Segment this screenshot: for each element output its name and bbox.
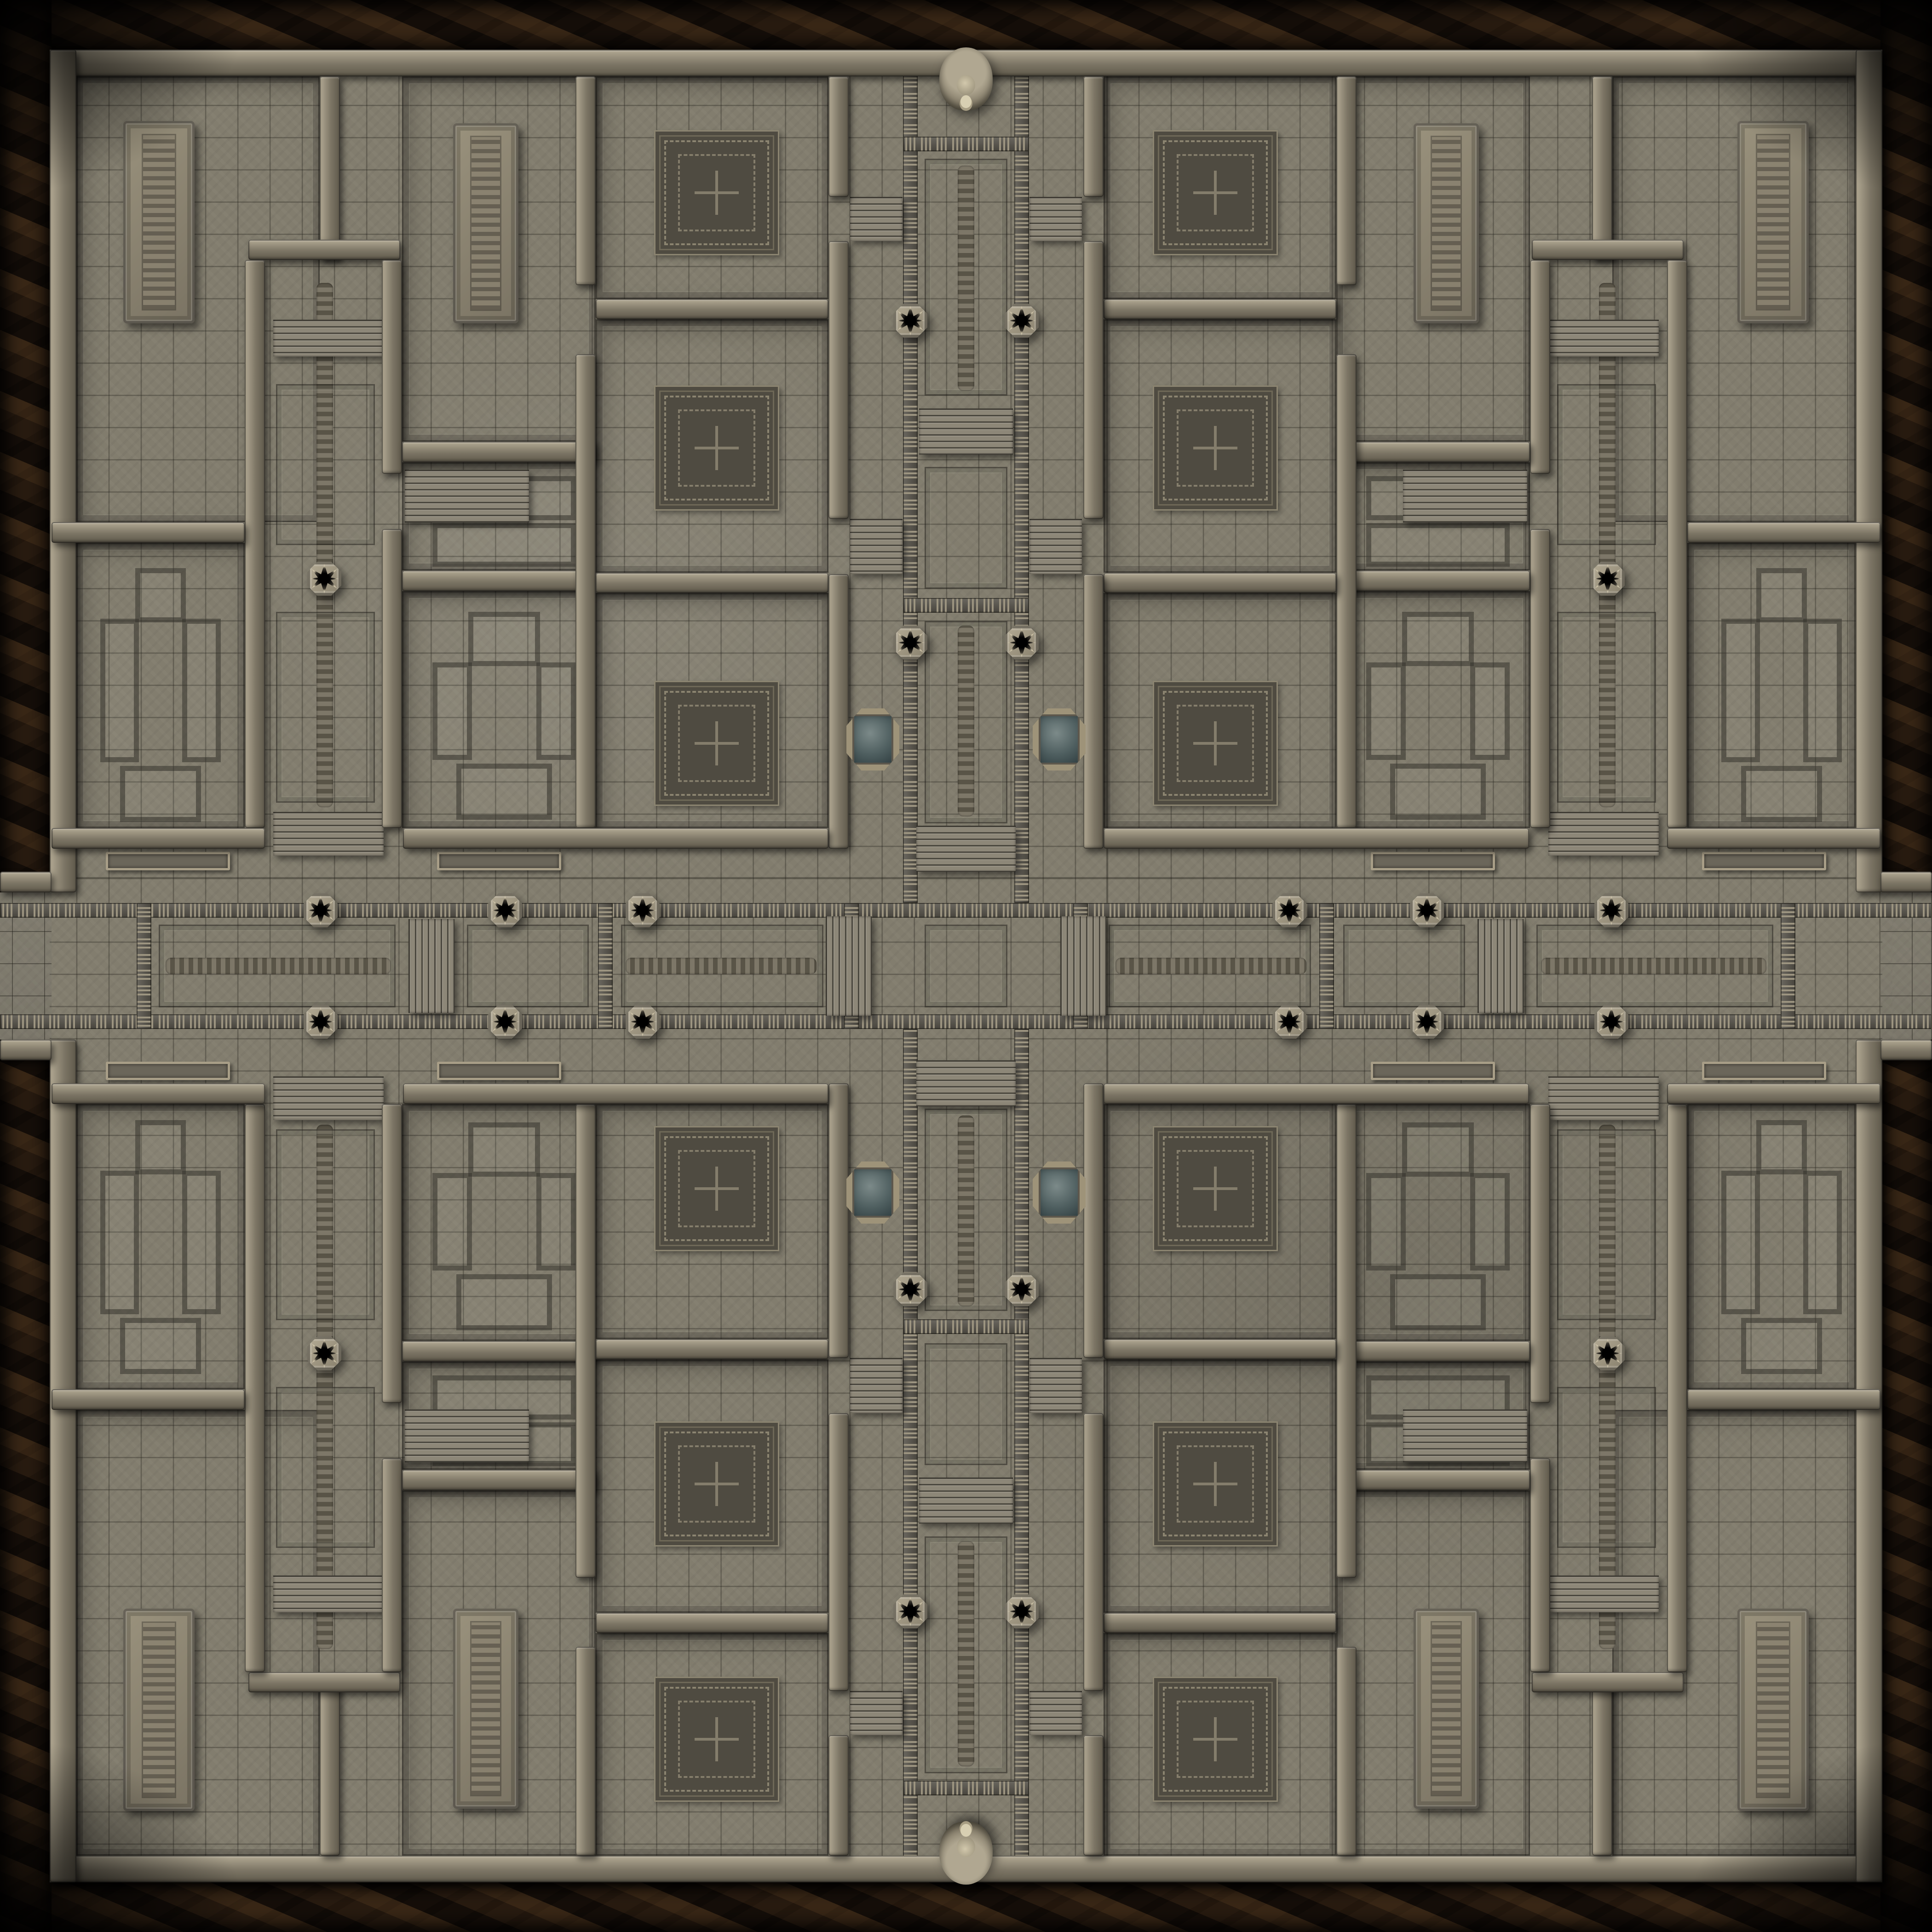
bench-slab (1371, 852, 1495, 870)
outer-wall (1856, 1040, 1882, 1882)
brazier (304, 1005, 338, 1039)
meander-border (903, 1781, 1029, 1795)
motif-bar-left (1366, 1173, 1406, 1271)
motif-rect-top (135, 1120, 185, 1174)
wall-segment (1083, 1413, 1104, 1691)
meander-border (903, 137, 1029, 151)
motif-rect-bottom (120, 766, 201, 822)
corridor-panel (276, 1129, 375, 1320)
stone-plinth (1737, 121, 1809, 323)
wall-segment (1880, 872, 1932, 892)
brazier (307, 562, 341, 596)
brazier (1005, 626, 1039, 660)
kneeling-statue (938, 1807, 994, 1888)
wall-segment (828, 1735, 849, 1856)
stairs (273, 1575, 384, 1612)
bench-slab (106, 852, 230, 870)
meander-border (903, 69, 918, 903)
corridor-panel (925, 1536, 1007, 1773)
floor-motif (100, 1120, 211, 1364)
wall-segment (575, 354, 596, 828)
stairs (405, 1409, 529, 1462)
wall-segment (1530, 1104, 1550, 1403)
labyrinth-mosaic (654, 130, 779, 255)
corridor-panel (925, 159, 1007, 396)
brazier (1272, 893, 1306, 927)
corridor-panel (1557, 384, 1656, 545)
wall-segment (1336, 354, 1357, 828)
wall-segment (1336, 1341, 1530, 1362)
floor-motif (432, 612, 566, 810)
stairs (1548, 812, 1659, 856)
wall-segment (1104, 573, 1336, 593)
motif-rect-top (1756, 1120, 1806, 1174)
corridor-panel (276, 612, 375, 803)
wall-segment (382, 1104, 402, 1403)
meander-border (903, 1029, 918, 1863)
motif-bar-right (1803, 619, 1842, 762)
corridor-panel (1557, 1129, 1656, 1320)
wall-segment (382, 260, 402, 474)
brazier (626, 1005, 660, 1039)
stone-plinth (453, 123, 518, 323)
motif-bar-left (100, 619, 139, 762)
stairs (1403, 1409, 1527, 1462)
meander-border (598, 903, 613, 1029)
corridor-panel (925, 1109, 1007, 1311)
wall-segment (1083, 1083, 1104, 1358)
wall-segment (52, 828, 265, 849)
meander-border (1029, 903, 1932, 918)
stairs (919, 1478, 1013, 1524)
bench-slab (1702, 1062, 1826, 1080)
floor-motif (1721, 1120, 1832, 1364)
stairs (273, 1076, 384, 1120)
stone-plinth (1737, 1609, 1809, 1811)
stairs (850, 1358, 903, 1413)
stairs (1029, 1358, 1082, 1413)
bench-slab (106, 1062, 230, 1080)
stairs (826, 916, 872, 1016)
wall-segment (1104, 1613, 1336, 1633)
wall-segment (1336, 1470, 1530, 1490)
wall-segment (245, 1104, 265, 1672)
wall-segment (828, 1413, 849, 1691)
wall-segment (1880, 1040, 1932, 1060)
corridor-panel (276, 384, 375, 545)
labyrinth-mosaic (654, 1677, 779, 1802)
stone-plinth (123, 1609, 195, 1811)
motif-rect-top (1402, 1122, 1474, 1177)
motif-rect-bottom (456, 1274, 552, 1330)
wall-segment (1532, 240, 1684, 260)
stairs (1029, 197, 1082, 241)
meander-border (903, 1319, 1029, 1334)
brazier (304, 893, 338, 927)
outer-wall (1856, 50, 1882, 892)
corridor-panel (159, 925, 396, 1007)
brazier (1591, 562, 1625, 596)
wall-segment (1336, 1104, 1357, 1578)
corridor-panel (621, 925, 823, 1007)
brazier (1410, 1005, 1444, 1039)
brazier (1594, 1005, 1628, 1039)
motif-bar-right (1470, 1173, 1510, 1271)
wall-segment (1336, 1647, 1357, 1856)
stairs (1060, 916, 1106, 1016)
wall-segment (52, 1083, 265, 1104)
kneeling-statue (938, 44, 994, 125)
wall-segment (1104, 1083, 1529, 1104)
wall-segment (575, 1647, 596, 1856)
motif-rect-top (468, 1122, 540, 1177)
labyrinth-mosaic (654, 681, 779, 806)
stairs (273, 812, 384, 856)
stairs (405, 470, 529, 523)
wall-segment (402, 442, 596, 462)
motif-rect-bottom (1741, 1318, 1822, 1374)
motif-rect-bottom (1390, 1274, 1486, 1330)
floor-motif (432, 1122, 566, 1320)
stairs (1478, 919, 1524, 1013)
wall-segment (1336, 76, 1357, 285)
wall-segment (1530, 1458, 1550, 1672)
wall-segment (596, 1339, 828, 1359)
meander-border (0, 903, 903, 918)
wall-segment (52, 522, 245, 543)
brazier (1410, 893, 1444, 927)
brazier (893, 1272, 927, 1306)
labyrinth-mosaic (654, 385, 779, 511)
stairs (1548, 1076, 1659, 1120)
floor-motif (1721, 568, 1832, 812)
wall-segment (828, 241, 849, 519)
dungeon-map (0, 0, 1932, 1932)
corridor-panel (1343, 925, 1465, 1007)
corridor-panel (925, 467, 1007, 589)
labyrinth-mosaic (1153, 1677, 1278, 1802)
wall-segment (248, 240, 400, 260)
stone-plinth (453, 1609, 518, 1809)
wall-segment (1592, 1672, 1612, 1856)
brazier (488, 893, 522, 927)
floor-motif (100, 568, 211, 812)
wall-segment (382, 1458, 402, 1672)
wall-segment (403, 828, 828, 849)
brazier (893, 1594, 927, 1628)
brazier (893, 304, 927, 338)
wall-segment (1083, 574, 1104, 849)
motif-rect-top (135, 568, 185, 622)
meander-border (0, 1014, 903, 1029)
wall-segment (402, 1341, 596, 1362)
wall-segment (1104, 828, 1529, 849)
ritual-pool (1033, 708, 1086, 770)
wall-segment (828, 574, 849, 849)
wall-segment (1667, 828, 1880, 849)
stairs (916, 1060, 1016, 1106)
brazier (626, 893, 660, 927)
wall-segment (1336, 570, 1530, 591)
stairs (919, 408, 1013, 454)
rock-border (0, 1880, 1932, 1932)
motif-bar-right (182, 1171, 221, 1314)
bench-slab (1702, 852, 1826, 870)
motif-bar-left (1721, 619, 1760, 762)
wall-segment (1532, 1672, 1684, 1692)
meander-border (1014, 1029, 1029, 1863)
brazier (1591, 1336, 1625, 1370)
meander-border (844, 903, 1088, 918)
corridor-panel (1557, 1387, 1656, 1548)
brazier (893, 626, 927, 660)
motif-bar-left (432, 662, 472, 760)
wall-segment (1667, 260, 1687, 828)
labyrinth-mosaic (1153, 681, 1278, 806)
meander-border (1029, 1014, 1932, 1029)
stone-plinth (1414, 123, 1479, 323)
wall-segment (575, 1104, 596, 1578)
labyrinth-mosaic (654, 1421, 779, 1547)
bench-slab (437, 1062, 561, 1080)
labyrinth-mosaic (1153, 130, 1278, 255)
wall-segment (52, 1389, 245, 1410)
meander-border (1014, 69, 1029, 903)
ritual-pool (846, 1161, 899, 1224)
wall-segment (245, 260, 265, 828)
stairs (850, 197, 903, 241)
brazier (1594, 893, 1628, 927)
wall-segment (1592, 76, 1612, 260)
corridor-panel (1557, 612, 1656, 803)
brazier (1272, 1005, 1306, 1039)
stairs (1403, 470, 1527, 523)
motif-rect-bottom (1741, 766, 1822, 822)
brazier (1005, 1594, 1039, 1628)
stairs (273, 320, 384, 356)
motif-bar-right (182, 619, 221, 762)
corridor-panel (467, 925, 589, 1007)
wall-segment (1104, 299, 1336, 319)
wall-segment (320, 76, 340, 260)
corridor-panel (925, 925, 1007, 1007)
motif-bar-left (432, 1173, 472, 1271)
stairs (1548, 320, 1659, 356)
corridor-panel (1536, 925, 1773, 1007)
meander-border (1319, 903, 1334, 1029)
labyrinth-mosaic (1153, 385, 1278, 511)
motif-rect-bottom (1366, 523, 1510, 567)
stone-plinth (123, 121, 195, 323)
wall-segment (1083, 1735, 1104, 1856)
wall-segment (596, 573, 828, 593)
corridor-panel (925, 621, 1007, 823)
corridor-panel (276, 1387, 375, 1548)
stairs (1029, 1691, 1082, 1735)
wall-segment (402, 570, 596, 591)
stairs (850, 519, 903, 574)
meander-border (1781, 903, 1795, 1029)
meander-border (137, 903, 151, 1029)
wall-segment (320, 1672, 340, 1856)
wall-segment (1667, 1104, 1687, 1672)
stairs (408, 919, 454, 1013)
brazier (307, 1336, 341, 1370)
outer-wall (50, 1040, 76, 1882)
wall-segment (1104, 1339, 1336, 1359)
meander-border (903, 598, 1029, 613)
motif-bar-left (1721, 1171, 1760, 1314)
motif-rect-bottom (432, 523, 576, 567)
stairs (1548, 1575, 1659, 1612)
bench-slab (1371, 1062, 1495, 1080)
wall-segment (382, 529, 402, 828)
stairs (1029, 519, 1082, 574)
wall-segment (828, 1083, 849, 1358)
corridor-panel (925, 1343, 1007, 1465)
floor-motif (1366, 612, 1500, 810)
stairs (916, 826, 1016, 872)
brazier (488, 1005, 522, 1039)
outer-wall (50, 50, 76, 892)
motif-rect-top (1402, 612, 1474, 666)
motif-bar-left (100, 1171, 139, 1314)
motif-rect-top (1756, 568, 1806, 622)
wall-segment (1687, 1389, 1880, 1410)
motif-bar-right (1803, 1171, 1842, 1314)
floor-motif (1366, 1122, 1500, 1320)
motif-bar-right (536, 1173, 576, 1271)
wall-segment (0, 872, 52, 892)
wall-segment (1336, 442, 1530, 462)
brazier (1005, 1272, 1039, 1306)
wall-segment (403, 1083, 828, 1104)
motif-bar-right (536, 662, 576, 760)
motif-rect-bottom (456, 764, 552, 820)
stone-plinth (1414, 1609, 1479, 1809)
wall-segment (1687, 522, 1880, 543)
ritual-pool (1033, 1161, 1086, 1224)
labyrinth-mosaic (1153, 1421, 1278, 1547)
motif-rect-top (468, 612, 540, 666)
brazier (1005, 304, 1039, 338)
wall-segment (1667, 1083, 1880, 1104)
wall-segment (1083, 76, 1104, 197)
motif-bar-right (1470, 662, 1510, 760)
wall-segment (828, 76, 849, 197)
wall-segment (1083, 241, 1104, 519)
wall-segment (596, 1613, 828, 1633)
ritual-pool (846, 708, 899, 770)
motif-bar-left (1366, 662, 1406, 760)
wall-segment (596, 299, 828, 319)
labyrinth-mosaic (654, 1126, 779, 1251)
wall-segment (1530, 529, 1550, 828)
wall-segment (0, 1040, 52, 1060)
labyrinth-mosaic (1153, 1126, 1278, 1251)
corridor-panel (1109, 925, 1311, 1007)
motif-rect-bottom (1390, 764, 1486, 820)
bench-slab (437, 852, 561, 870)
motif-rect-bottom (120, 1318, 201, 1374)
wall-segment (248, 1672, 400, 1692)
wall-segment (402, 1470, 596, 1490)
stairs (850, 1691, 903, 1735)
meander-border (844, 1014, 1088, 1029)
wall-segment (1530, 260, 1550, 474)
wall-segment (575, 76, 596, 285)
